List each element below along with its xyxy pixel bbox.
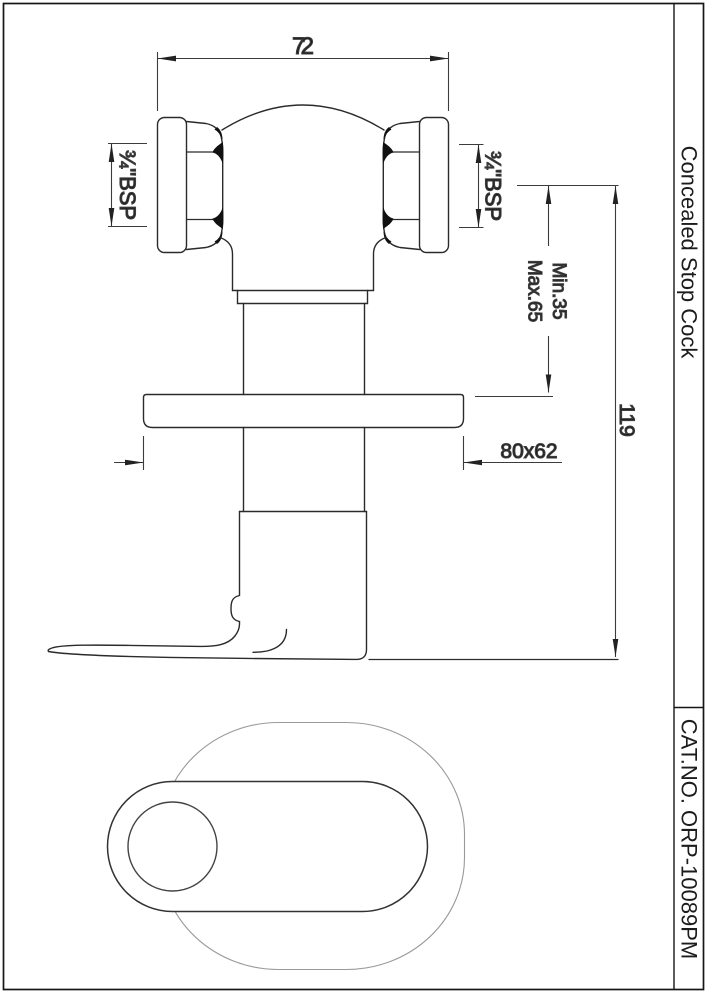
wall-flange-plate — [144, 395, 464, 428]
left-hex-nut-face-lines — [187, 152, 215, 220]
lever-back-fillet — [253, 630, 287, 653]
dim-bsp-left-label: ¾"BSP — [115, 150, 140, 220]
collar-step — [238, 291, 368, 304]
left-flange — [158, 118, 187, 253]
valve-body-dome-outline — [222, 105, 384, 130]
left-hex-nut-outline — [187, 122, 223, 250]
dim-depth-max-label: Max.65 — [524, 260, 545, 322]
right-hex-nut-outline — [383, 122, 419, 250]
dimension-annotations: 72 ¾"BSP ¾"BSP — [108, 33, 638, 657]
dim-flange-label: 80x62 — [500, 440, 557, 463]
right-flange — [420, 118, 449, 253]
dim-height-label: 119 — [615, 403, 638, 436]
dimension-top-width — [158, 52, 449, 111]
drawing-sheet: Concealed Stop Cock CAT.NO. ORP-10089PM — [0, 0, 707, 1000]
base-and-lever-outline — [48, 512, 366, 660]
upper-stem — [244, 304, 365, 395]
lower-stem — [244, 428, 365, 512]
hex-nut-chamfer-shading — [213, 127, 394, 244]
catalog-number: CAT.NO. ORP-10089PM — [677, 719, 702, 959]
right-hex-nut-face-lines — [392, 152, 420, 220]
body-right-fillet — [374, 238, 387, 291]
sidebar-title: Concealed Stop Cock — [677, 146, 702, 360]
dim-bsp-right-label: ¾"BSP — [481, 151, 506, 221]
dim-top-width-label: 72 — [292, 33, 314, 60]
technical-drawing: Concealed Stop Cock CAT.NO. ORP-10089PM — [0, 0, 707, 1000]
plan-view — [108, 723, 465, 970]
dimension-bsp-right — [459, 145, 484, 228]
spindle-plan-circle — [128, 802, 217, 891]
dim-depth-min-label: Min.35 — [548, 262, 569, 319]
dimension-flange-size — [114, 436, 562, 470]
body-left-fillet — [220, 238, 233, 291]
